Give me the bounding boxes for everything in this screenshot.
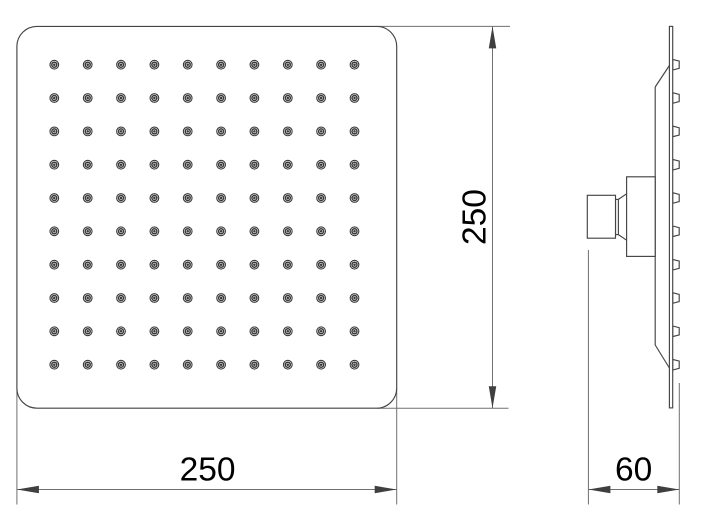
svg-text:60: 60 xyxy=(615,452,652,489)
svg-text:250: 250 xyxy=(180,452,236,489)
svg-text:250: 250 xyxy=(456,189,493,245)
